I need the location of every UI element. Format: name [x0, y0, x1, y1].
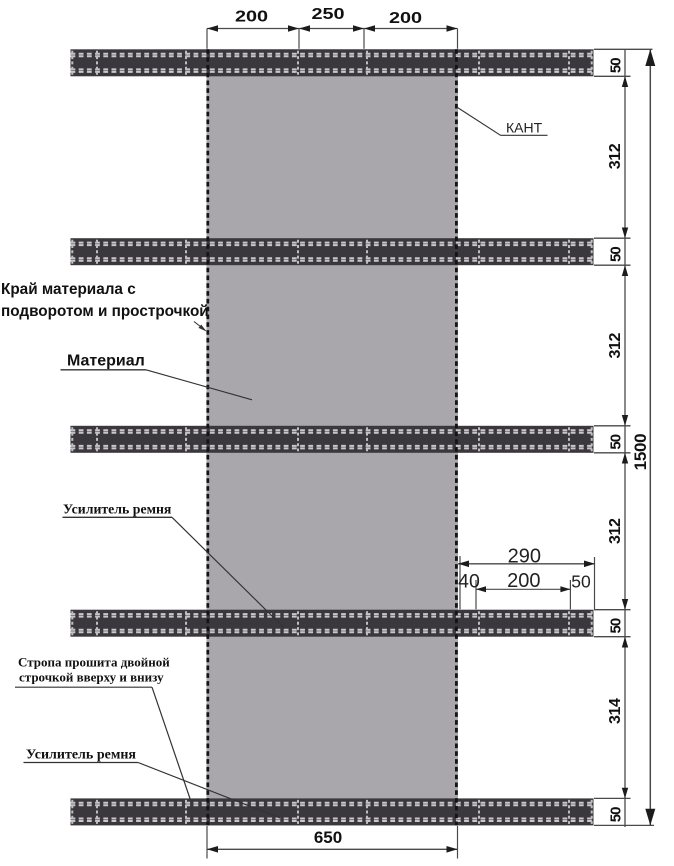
svg-text:312: 312 [607, 333, 624, 359]
svg-text:строчкой вверху и внизу: строчкой вверху и внизу [19, 669, 164, 684]
svg-text:290: 290 [508, 546, 541, 568]
svg-text:Материал: Материал [67, 353, 145, 370]
svg-text:50: 50 [607, 434, 624, 449]
svg-text:Край материала с: Край материала с [1, 281, 136, 298]
svg-text:250: 250 [311, 5, 344, 23]
svg-text:50: 50 [571, 572, 591, 592]
svg-text:40: 40 [458, 571, 480, 593]
svg-text:КАНТ: КАНТ [506, 120, 543, 136]
svg-text:200: 200 [389, 9, 422, 27]
svg-text:Стропа прошита двойной: Стропа прошита двойной [18, 655, 170, 670]
svg-text:50: 50 [607, 807, 624, 822]
svg-text:50: 50 [607, 247, 624, 262]
svg-text:Усилитель ремня: Усилитель ремня [63, 501, 172, 516]
svg-text:312: 312 [607, 143, 624, 169]
svg-text:650: 650 [314, 828, 342, 847]
svg-text:1500: 1500 [631, 434, 650, 471]
svg-text:200: 200 [507, 570, 540, 592]
svg-text:200: 200 [235, 7, 268, 25]
svg-text:50: 50 [607, 618, 624, 633]
svg-text:314: 314 [607, 698, 624, 724]
svg-text:подворотом и прострочкой: подворотом и прострочкой [1, 303, 209, 320]
svg-text:Усилитель ремня: Усилитель ремня [26, 748, 136, 763]
svg-text:312: 312 [607, 518, 624, 544]
svg-text:50: 50 [607, 58, 624, 73]
